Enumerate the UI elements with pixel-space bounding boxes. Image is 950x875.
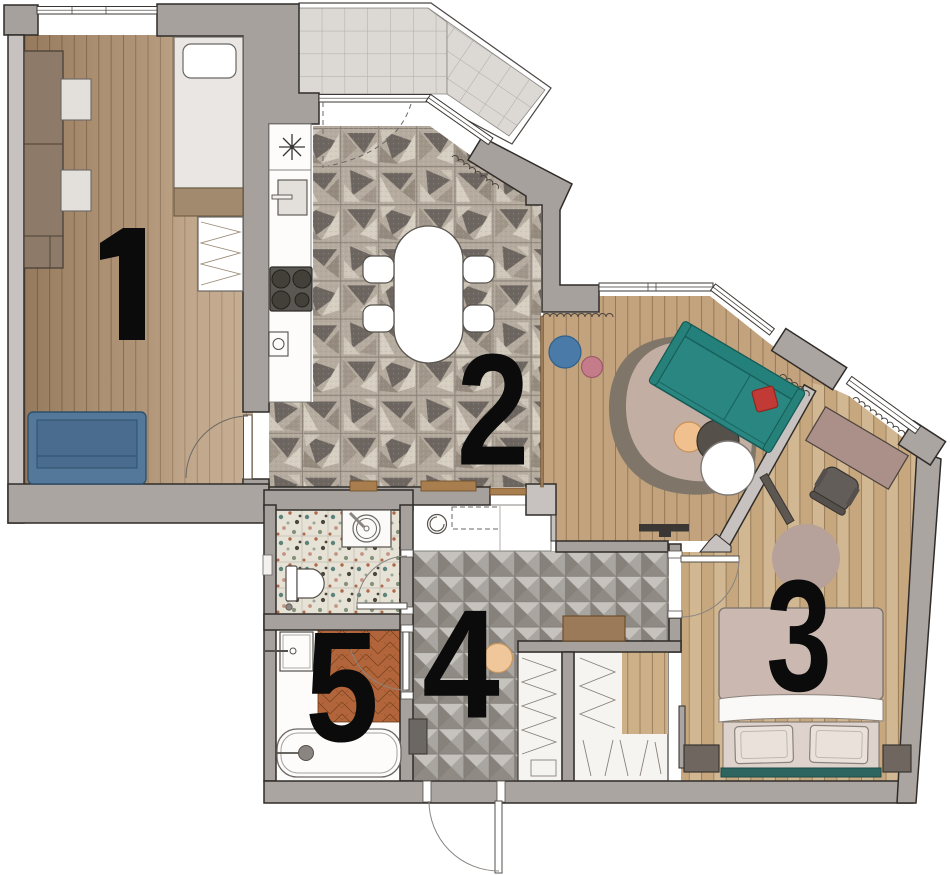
svg-text:4: 4	[422, 579, 500, 751]
svg-text:5: 5	[305, 599, 378, 774]
svg-text:3: 3	[766, 546, 831, 724]
svg-text:2: 2	[457, 320, 530, 498]
